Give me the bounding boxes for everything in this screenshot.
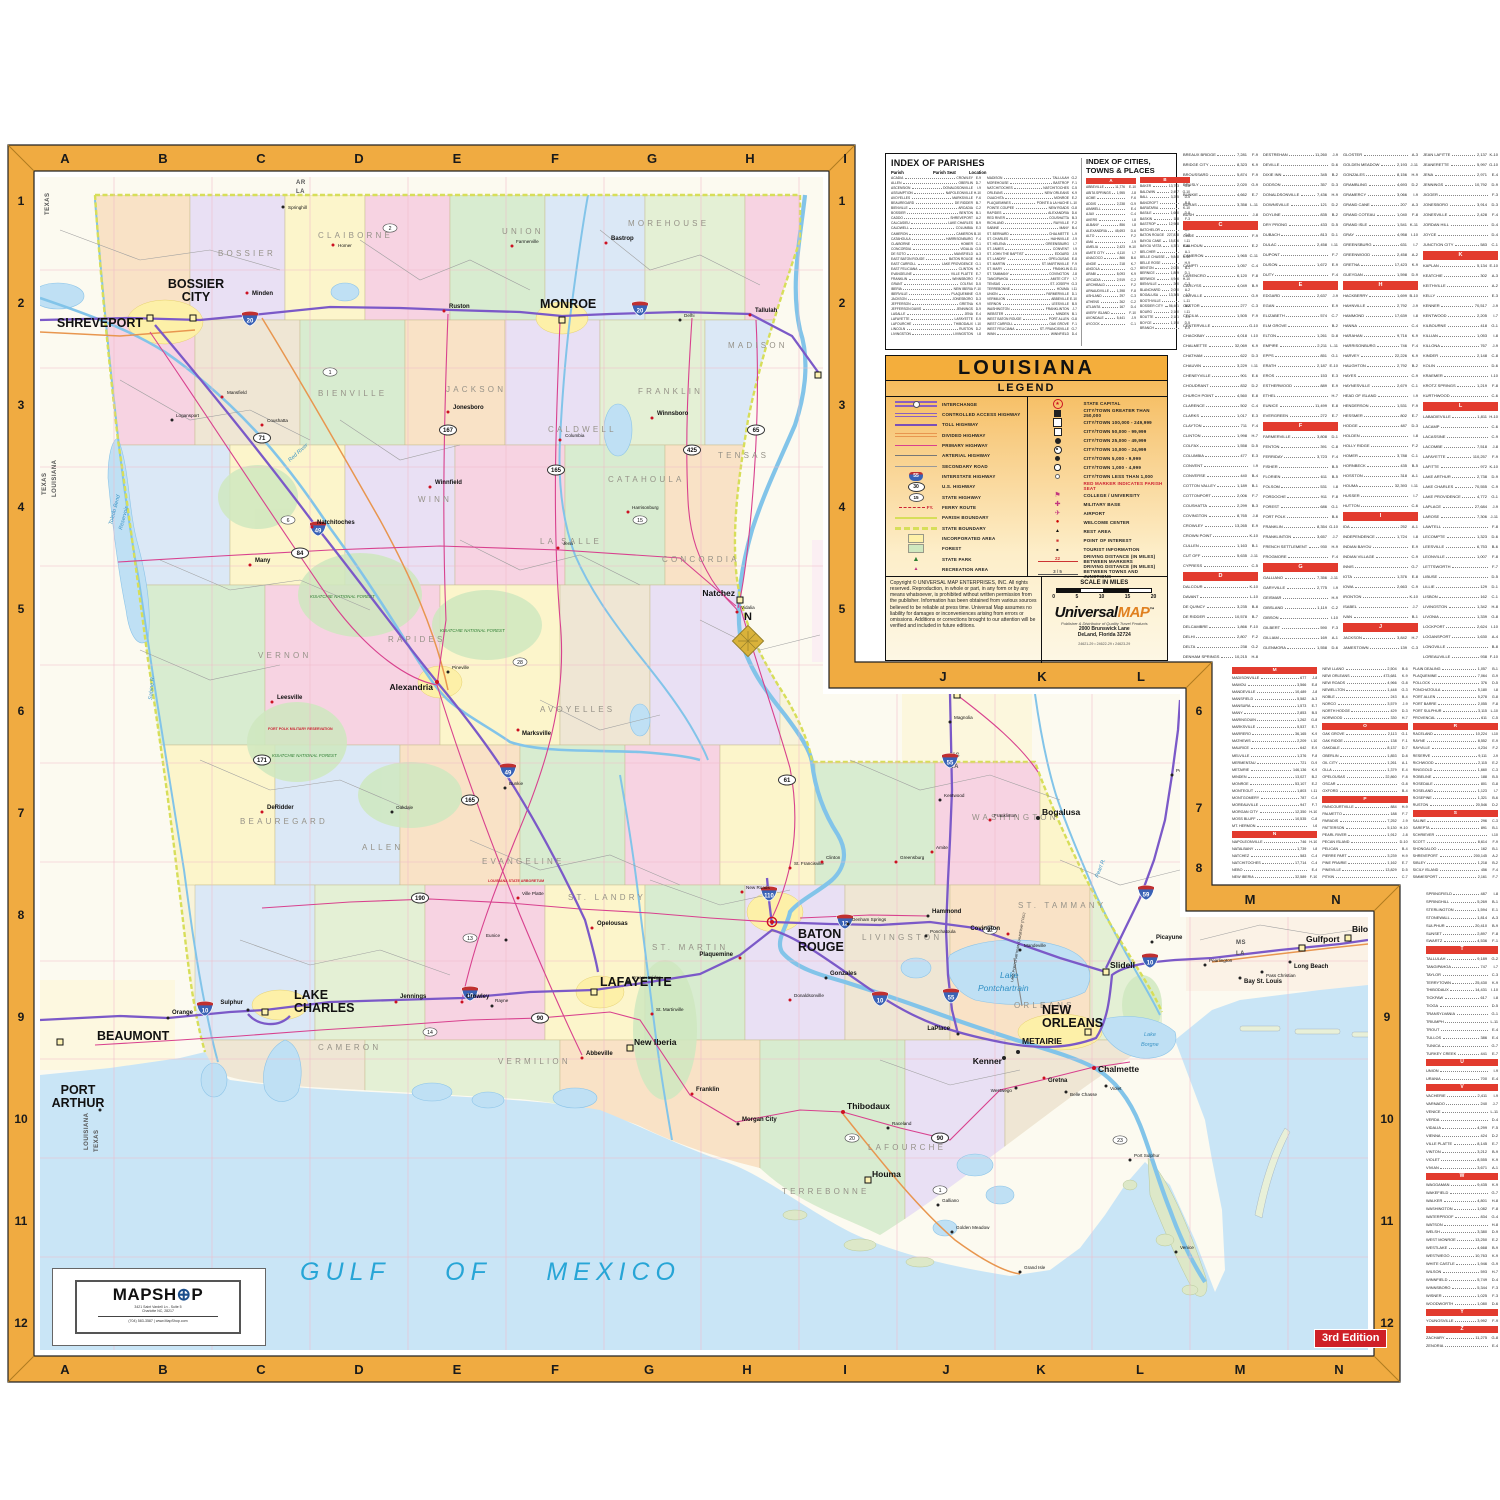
index-row: JAMESTOWN139C-3: [1343, 643, 1418, 653]
index-row: LETTSWORTHF-7: [1423, 562, 1498, 572]
index-row: WINNFIELD5,749D-4: [1426, 1276, 1498, 1284]
index-row: CADEF-9: [1183, 231, 1258, 241]
parish-rows: ACADIACROWLEYE-9ALLENOBERLIND-7ASCENSION…: [891, 176, 1077, 340]
legend-panel: LOUISIANA LEGEND INTERCHANGECONTROLLED A…: [885, 355, 1168, 661]
state-highway-oval: 2: [383, 224, 397, 232]
ferry-icon: FY.: [890, 503, 942, 512]
city-index-start: INDEX OF CITIES,TOWNS & PLACES AABBEVILL…: [1081, 158, 1190, 346]
city-marker: [1103, 969, 1109, 975]
index-row: CHOUDRANT832D-2: [1183, 381, 1258, 391]
index-row: CHURCH POINT4,560E-8: [1183, 391, 1258, 401]
legend-row: ✚MILITARY BASE: [1032, 500, 1167, 509]
city-label: Alexandria: [390, 682, 434, 692]
index-row: RINGGOLD1,660C-3: [1413, 767, 1498, 774]
city-index-right-2: MMADISONVILLE677J-8MAMOU3,566E-8MANDEVIL…: [1232, 666, 1498, 885]
index-row: DUSON1,672E-9: [1263, 260, 1338, 270]
index-row: PORT SULPHUR3,115L-10: [1413, 708, 1498, 715]
c10-icon: [1032, 445, 1084, 454]
city-marker: [1015, 1087, 1018, 1090]
index-row: KEATCHIE302A-3: [1423, 271, 1498, 281]
map-label: TEXAS: [94, 1129, 100, 1152]
city-label: Jena: [563, 541, 573, 546]
map-label: BIENVILLE: [318, 389, 387, 398]
index-row: PINE PRAIRIE1,162E-7: [1322, 860, 1407, 867]
index-row: WESTLAKE4,668B-9: [1426, 1244, 1498, 1252]
index-row: VIDALIA4,299F-5: [1426, 1124, 1498, 1132]
index-row: WINNSBORO5,344F-3: [1426, 1284, 1498, 1292]
index-row: HAUGHTON2,792B-2: [1343, 361, 1418, 371]
city-label: Minden: [252, 291, 273, 297]
city-marker: [332, 244, 335, 247]
index-row: GUEYDAN1,598D-9: [1343, 270, 1418, 280]
index-row: RAYNE8,552E-9: [1413, 738, 1498, 745]
index-section-header: I: [1343, 512, 1418, 521]
index-row: CROWN POINTK-10: [1183, 531, 1258, 541]
city-marker: [261, 811, 264, 814]
city-label: METAIRIE: [1022, 1036, 1062, 1046]
city-marker: [447, 411, 450, 414]
c50-icon: [1032, 427, 1084, 436]
city-marker: [167, 1017, 170, 1020]
legend-state-title: LOUISIANA: [886, 356, 1167, 381]
city-marker: [627, 1045, 633, 1051]
college-icon: ⚑: [1032, 491, 1084, 500]
legend-row: PARISH BOUNDARY: [890, 513, 1026, 523]
index-row: CARLYSS4,049B-9: [1183, 281, 1258, 291]
city-marker: [1151, 941, 1154, 944]
index-row: DESTREHAN11,260J-9: [1263, 150, 1338, 160]
index-row: ISABELJ-7: [1343, 602, 1418, 612]
city-label: Mandeville: [1024, 943, 1046, 948]
index-row: IOWA2,663C-9: [1343, 582, 1418, 592]
city-marker: [1175, 1251, 1178, 1254]
index-row: DEVILLED-6: [1263, 160, 1338, 170]
grid-letter: H: [742, 1362, 751, 1377]
grid-number: 8: [1196, 861, 1203, 875]
index-row: WHITE CASTLE1,946G-9: [1426, 1260, 1498, 1268]
svg-text:20: 20: [637, 309, 644, 315]
index-row: RAYVILLE4,234F-2: [1413, 745, 1498, 752]
city-marker: [1043, 1077, 1046, 1080]
us-highway-shield: 425: [684, 445, 701, 455]
map-label: TEXAS: [42, 472, 48, 495]
index-row: MINDEN13,027B-2: [1232, 774, 1317, 781]
index-row: LAPLACE27,684J-9: [1423, 502, 1498, 512]
index-row: JIGGERF-3: [1423, 190, 1498, 200]
legend-row: FOREST: [890, 544, 1026, 554]
location-col-header: Location: [969, 170, 986, 175]
index-row: KILLONA767J-9: [1423, 341, 1498, 351]
index-row: NEW ORLEANS473,681K-9: [1322, 673, 1407, 680]
index-row: STONEWALL1,814A-3: [1426, 914, 1498, 922]
index-row: ZENORIAE-4: [1426, 1342, 1498, 1350]
index-row: MADISONVILLE677J-8: [1232, 675, 1317, 682]
edition-badge: 3rd Edition: [1314, 1329, 1387, 1348]
map-label: FORT POLK MILITARY RESERVATION: [268, 727, 333, 731]
index-row: PROVENCAL611C-5: [1413, 715, 1498, 722]
tourist-icon: ■: [1032, 545, 1084, 554]
state-highway-oval: 14: [423, 1028, 437, 1036]
city-marker: [887, 1127, 890, 1130]
index-row: HARVEY22,226K-9: [1343, 351, 1418, 361]
city-marker: [825, 977, 828, 980]
map-label: Lake: [1000, 970, 1019, 980]
interchange-icon: [890, 400, 942, 409]
map-label: FRANKLIN: [638, 387, 703, 396]
index-row: NEW ROADS4,966G-8: [1322, 680, 1407, 687]
city-marker: [447, 671, 450, 674]
svg-text:59: 59: [1143, 893, 1150, 899]
index-row: SIMMESPORT2,161F-7: [1413, 874, 1498, 881]
grid-letter: G: [647, 151, 657, 166]
city-label: Bogalusa: [1042, 807, 1081, 817]
index-row: PIERRE PART3,239H-9: [1322, 853, 1407, 860]
grid-letter: L: [1137, 669, 1145, 684]
legend-row: 22DRIVING DISTANCE (IN MILES) BETWEEN MA…: [1032, 554, 1167, 564]
map-label: BEAUREGARD: [240, 817, 328, 826]
grid-letter: I: [843, 151, 847, 166]
c1-icon: [1032, 463, 1084, 472]
map-label: Pontchartrain: [978, 983, 1029, 993]
us-highway-shield: 90: [532, 1013, 549, 1023]
index-row: BREAUX BRIDGE7,281F-9: [1183, 150, 1258, 160]
city-label: Galliano: [942, 1198, 959, 1203]
index-row: VIOLET8,555K-9: [1426, 1156, 1498, 1164]
compass-o-icon: ⊕: [177, 1285, 192, 1304]
city-label: New Roads: [746, 885, 770, 890]
grid-letter: A: [60, 151, 70, 166]
grid-number: 12: [14, 1316, 28, 1330]
index-row: FERRIDAY3,723F-4: [1263, 452, 1338, 462]
index-row: SWARTZ4,536F-1: [1426, 937, 1498, 945]
city-marker: [927, 915, 930, 918]
spark-icon: ▲: [890, 555, 942, 564]
grid-letter: M: [1235, 1362, 1246, 1377]
city-marker: [937, 1204, 940, 1207]
usoval-icon: 30: [890, 482, 942, 491]
city-marker: [679, 319, 682, 322]
index-row: HUSSERI-7: [1343, 491, 1418, 501]
index-row: GRAND CANE207A-3: [1343, 200, 1418, 210]
index-row: BROUSSARD5,874F-9: [1183, 170, 1258, 180]
map-label: AVOYELLES: [540, 705, 615, 714]
city-label: BATON: [798, 927, 841, 941]
index-row: PAINCOURTVILLE884H-9: [1322, 804, 1407, 811]
legend-row: ●WELCOME CENTER: [1032, 518, 1167, 527]
index-section-header: N: [1232, 831, 1317, 838]
city-label: Thibodaux: [847, 1101, 890, 1111]
index-row: BRUSLY2,020G-9: [1183, 180, 1258, 190]
city-label: Winnfield: [435, 480, 462, 486]
index-row: OBERLIN1,853D-8: [1322, 753, 1407, 760]
index-row: GOLDEN MEADOW2,193J-11: [1343, 160, 1418, 170]
city-label: Delhi: [684, 313, 694, 318]
index-row: DRY PRONG433D-5: [1263, 220, 1338, 230]
city-marker: [989, 819, 992, 822]
index-row: ROSEPINE1,321B-6: [1413, 795, 1498, 802]
grid-number: 10: [14, 1112, 28, 1126]
index-row: LAKE PROVIDENCE4,772G-1: [1423, 492, 1498, 502]
city-label: Slidell: [1110, 960, 1135, 970]
city-label: Morgan City: [742, 1117, 777, 1123]
legend-right-column: ★STATE CAPITALCITY/TOWN GREATER THAN 250…: [1027, 397, 1168, 576]
map-label: AR: [296, 180, 306, 186]
legend-row: CITY/TOWN GREATER THAN 250,000: [1032, 408, 1167, 418]
index-row: PLAIN DEALING1,057B-1: [1413, 666, 1498, 673]
city-label: Houma: [872, 1169, 901, 1179]
mapshop-address-2: Charlotte NC, 28217: [77, 1309, 239, 1313]
index-row: NEBOE-4: [1232, 867, 1317, 874]
parishb-icon: [890, 513, 942, 522]
index-row: CHENEYVILLE901E-6: [1183, 371, 1258, 381]
index-row: HANNAC-4: [1343, 321, 1418, 331]
index-row: PATTERSON5,130H-10: [1322, 825, 1407, 832]
index-row: ERATH2,187E-10: [1263, 361, 1338, 371]
index-row: SPRINGFIELD487I-8: [1426, 890, 1498, 898]
index-row: JENNINGS10,792D-9: [1423, 180, 1498, 190]
capital-icon: ★: [1032, 399, 1084, 408]
controlled-icon: [890, 410, 942, 419]
copyright-text: Copyright © UNIVERSAL MAP ENTERPRISES, I…: [886, 577, 1041, 663]
map-label: TEXAS: [45, 192, 51, 215]
c250-icon: [1032, 409, 1084, 418]
svg-text:10: 10: [202, 1009, 209, 1015]
index-row: MONROE53,107E-2: [1232, 781, 1317, 788]
grid-number: 5: [839, 602, 846, 616]
legend-columns: INTERCHANGECONTROLLED ACCESS HIGHWAYTOLL…: [886, 397, 1167, 577]
city-marker: [517, 897, 520, 900]
map-label: VERMILION: [498, 1057, 571, 1066]
parish-index-title: INDEX OF PARISHES: [891, 158, 1077, 168]
index-row: DELCAMBRE1,866F-10: [1183, 622, 1258, 632]
city-marker: [1065, 1091, 1068, 1094]
map-label: MOREHOUSE: [628, 219, 709, 228]
index-row: CHALMETTE32,069K-9: [1183, 341, 1258, 351]
index-row: FARMERVILLE3,808D-1: [1263, 432, 1338, 442]
map-label: Borgne: [1141, 1042, 1159, 1048]
grid-letter: J: [939, 669, 946, 684]
index-row: FRANKLINTON3,657J-7: [1263, 532, 1338, 542]
index-section-header: M: [1232, 667, 1317, 674]
index-row: DE QUINCY3,235B-8: [1183, 602, 1258, 612]
index-row: UNIONI-9: [1426, 1067, 1498, 1075]
map-label: LA: [296, 189, 305, 195]
index-row: IRONTONK-10: [1343, 592, 1418, 602]
index-row: PLAQUEMINE7,064G-9: [1413, 673, 1498, 680]
grid-letter: I: [843, 1362, 847, 1377]
index-row: URANIA700E-4: [1426, 1075, 1498, 1083]
index-row: HOLLY RIDGEF-2: [1343, 441, 1418, 451]
city-label: Violet: [1110, 1086, 1122, 1091]
index-row: TRIUMPHL-11: [1426, 1018, 1498, 1026]
city-marker: [57, 1039, 63, 1045]
index-row: EVERGREEN272E-7: [1263, 411, 1338, 421]
city-label: Pass Christian: [1266, 973, 1296, 978]
index-row: LACASSINEC-9: [1423, 432, 1498, 442]
index-row: INDEPENDENCE1,724I-8: [1343, 532, 1418, 542]
grid-number: 3: [18, 398, 25, 412]
city-label: Springhill: [288, 205, 307, 210]
index-row: KENNER70,517J-9: [1423, 301, 1498, 311]
index-row: PARADIS7,252J-9: [1322, 818, 1407, 825]
city-label: New Iberia: [634, 1037, 677, 1047]
index-row: MAURICE642E-9: [1232, 745, 1317, 752]
city-label: Port Sulphur: [1134, 1153, 1160, 1158]
index-row: SHREVEPORT200,145A-2: [1413, 853, 1498, 860]
city-marker: [691, 1093, 694, 1096]
grid-letter: G: [644, 1362, 654, 1377]
index-row: LILLIE129D-1: [1423, 582, 1498, 592]
index-row: DIXIE INN345B-2: [1263, 170, 1338, 180]
index-row: RUSTON20,546D-2: [1413, 802, 1498, 809]
index-row: LONGVILLEB-8: [1423, 642, 1498, 652]
city-marker: [841, 1110, 845, 1114]
index-row: LIVONIA1,339G-8: [1423, 612, 1498, 622]
index-row: LISBON162C-1: [1423, 592, 1498, 602]
city-label: Denham Springs: [852, 917, 887, 922]
city-label: Westwego: [991, 1088, 1013, 1093]
city-label: ORLEANS: [1042, 1016, 1103, 1030]
index-row: HAMMOND17,639I-8: [1343, 311, 1418, 321]
index-row: TRANSYLVANIAG-1: [1426, 1010, 1498, 1018]
state-highway-oval: 23: [1113, 1136, 1127, 1144]
legend-row: CONTROLLED ACCESS HIGHWAY: [890, 409, 1026, 419]
index-row: GILLIAM169A-1: [1263, 633, 1338, 643]
index-row: HARRISONBURG746F-4: [1343, 341, 1418, 351]
index-row: GRETNA17,423K-9: [1343, 260, 1418, 270]
legend-row: STATE BOUNDARY: [890, 523, 1026, 533]
index-row: CONVENTI-9: [1183, 461, 1258, 471]
city-marker: [939, 799, 942, 802]
index-row: OLLA1,379E-4: [1322, 767, 1407, 774]
index-row: METAIRIE146,136K-9: [1232, 767, 1317, 774]
index-row: PEARL RIVER1,912J-8: [1322, 832, 1407, 839]
map-label: WINN: [418, 495, 452, 504]
index-row: WOODWORTH1,080D-6: [1426, 1300, 1498, 1308]
city-marker: [559, 439, 562, 442]
index-row: KOLIND-6: [1423, 361, 1498, 371]
index-row: WAKEFIELDG-7: [1426, 1189, 1498, 1197]
city-label: Columbia: [565, 433, 585, 438]
index-row: LIVINGSTON1,342H-8: [1423, 602, 1498, 612]
city-label: Bunkie: [509, 781, 523, 786]
index-row: WILSON593H-7: [1426, 1268, 1498, 1276]
city-label: Grand Isle: [1024, 1265, 1046, 1270]
index-row: FENTON391C-8: [1263, 442, 1338, 452]
city-marker: [505, 939, 508, 942]
index-row: DULAC2,458I-11: [1263, 240, 1338, 250]
map-label: KISATCHIE NATIONAL FOREST: [272, 753, 337, 758]
index-row: FISHERB-5: [1263, 462, 1338, 472]
index-row: VACHERIE2,411I-9: [1426, 1092, 1498, 1100]
index-row: GONZALES8,156H-9: [1343, 170, 1418, 180]
index-row: ETHELH-7: [1263, 391, 1338, 401]
grid-letter: D: [354, 151, 363, 166]
index-row: EROS153E-3: [1263, 371, 1338, 381]
index-row: OSCARG-8: [1322, 781, 1407, 788]
city-label: PORT: [61, 1083, 96, 1097]
city-label: Jonesboro: [453, 405, 484, 411]
city-label: Kenner: [973, 1056, 1003, 1066]
index-row: FORT POLKB-6: [1263, 512, 1338, 522]
index-row: DONALDSONVILLE7,436H-9: [1263, 190, 1338, 200]
city-label: Long Beach: [1294, 964, 1329, 970]
city-marker: [461, 1001, 464, 1004]
svg-text:55: 55: [948, 996, 955, 1002]
legend-row: CITY/TOWN 100,000 - 249,999: [1032, 418, 1167, 427]
index-row: NEWELLTON1,448G-3: [1322, 687, 1407, 694]
city-index-right-3: SPRINGFIELD487I-8SPRINGHILL5,269B-1STERL…: [1426, 890, 1498, 1358]
index-row: DELTA238G-2: [1183, 642, 1258, 652]
index-section-header: W: [1426, 1173, 1498, 1181]
city-marker: [443, 310, 446, 313]
city-marker: [1289, 961, 1292, 964]
city-label: Donaldsonville: [794, 993, 824, 998]
index-row: ZACHARY11,275G-8: [1426, 1334, 1498, 1342]
city-marker: [171, 419, 174, 422]
welcome-icon: ●: [1032, 518, 1084, 527]
grid-letter: H: [745, 151, 754, 166]
legend-bottom: Copyright © UNIVERSAL MAP ENTERPRISES, I…: [886, 577, 1167, 663]
city-marker: [249, 564, 252, 567]
city-label: Amite: [936, 845, 948, 850]
index-row: WAGGAMAN9,435K-9: [1426, 1181, 1498, 1189]
index-row: CAMERON1,965C-11: [1183, 251, 1258, 261]
grid-letter: A: [60, 1362, 70, 1377]
index-row: CLAYTON711F-4: [1183, 421, 1258, 431]
index-row: VINTON3,212B-9: [1426, 1148, 1498, 1156]
index-row: FORDOCHE911F-8: [1263, 492, 1338, 502]
map-label: Lake: [1144, 1032, 1156, 1038]
index-row: RESERVE9,111J-9: [1413, 753, 1498, 760]
map-label: MADISON: [728, 341, 788, 350]
index-row: LAWTELLF-8: [1423, 522, 1498, 532]
index-row: NATCHEZ583C-4: [1232, 853, 1317, 860]
index-row: HODGE487D-3: [1343, 421, 1418, 431]
city-marker: [1007, 933, 1010, 936]
grid-number: 10: [1380, 1112, 1394, 1126]
index-row: MANSFIELD5,582A-3: [1232, 696, 1317, 703]
legend-row: ▲STATE PARK: [890, 554, 1026, 564]
svg-text:190: 190: [415, 896, 426, 902]
map-label: CONCORDIA: [662, 555, 740, 564]
svg-text:110: 110: [764, 894, 774, 900]
grid-number: 8: [18, 908, 25, 922]
mapshop-sticker: MAPSH⊕P 3421 Saint Vardell Ln - Suite 5 …: [52, 1268, 266, 1346]
primary-icon: [890, 441, 942, 450]
svg-text:23: 23: [1117, 1138, 1123, 1144]
city-label: Winnsboro: [657, 411, 689, 417]
index-row: NOBLE243B-4: [1322, 694, 1407, 701]
index-row: DUPONTF-7: [1263, 250, 1338, 260]
index-row: TIOGAD-5: [1426, 1002, 1498, 1010]
grid-number: 1: [839, 194, 846, 208]
map-label: LOUISIANA STATE ARBORETUM: [488, 879, 544, 883]
index-row: JONESBORO3,914D-3: [1423, 200, 1498, 210]
city-label: Franklinton: [994, 813, 1017, 818]
city-label: Ruston: [449, 304, 470, 310]
mapshop-divider: [98, 1316, 218, 1317]
index-row: PECAN ISLANDD-10: [1322, 839, 1407, 846]
svg-text:165: 165: [465, 798, 476, 804]
city-label: ROUGE: [798, 940, 844, 954]
city-marker: [741, 891, 744, 894]
city-marker: [821, 861, 824, 864]
legend-row: DIVIDED HIGHWAY: [890, 430, 1026, 440]
index-row: FRANKLIN8,354G-10: [1263, 522, 1338, 532]
svg-text:6: 6: [287, 518, 290, 524]
city-label: DeRidder: [267, 805, 294, 811]
